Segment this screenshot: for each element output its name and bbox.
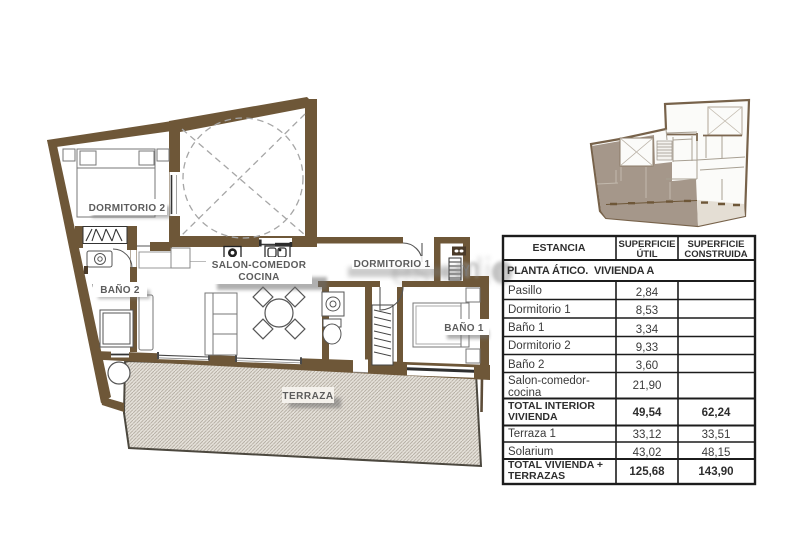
svg-text:Pasillo: Pasillo (508, 285, 542, 297)
svg-text:43,02: 43,02 (633, 447, 662, 459)
svg-text:TERRAZA: TERRAZA (282, 391, 333, 402)
svg-text:Baño 1: Baño 1 (508, 322, 544, 334)
svg-text:SALON-COMEDOR: SALON-COMEDOR (212, 260, 307, 271)
svg-text:DORMITORIO 2: DORMITORIO 2 (89, 203, 166, 214)
svg-text:TERRAZAS: TERRAZAS (508, 470, 565, 482)
svg-text:125,68: 125,68 (629, 466, 665, 478)
svg-text:2,84: 2,84 (636, 287, 659, 299)
svg-text:CONSTRUIDA: CONSTRUIDA (684, 249, 747, 260)
svg-text:PLANTA ÁTICO.: PLANTA ÁTICO. (507, 264, 588, 277)
svg-text:ÚTIL: ÚTIL (636, 248, 657, 260)
svg-text:Dormitorio 1: Dormitorio 1 (508, 304, 571, 316)
svg-text:8,53: 8,53 (636, 305, 658, 317)
svg-text:33,51: 33,51 (702, 429, 731, 441)
svg-text:9,33: 9,33 (636, 342, 658, 354)
svg-text:33,12: 33,12 (633, 429, 662, 441)
svg-text:DORMITORIO 1: DORMITORIO 1 (354, 259, 431, 270)
svg-text:Salon-comedor-: Salon-comedor- (508, 375, 590, 387)
svg-text:21,90: 21,90 (633, 380, 662, 392)
svg-text:VIVIENDA A: VIVIENDA A (594, 265, 654, 277)
svg-text:3,60: 3,60 (636, 360, 658, 372)
svg-text:3,34: 3,34 (636, 324, 659, 336)
svg-text:BAÑO 1: BAÑO 1 (444, 321, 484, 334)
svg-text:62,24: 62,24 (702, 407, 731, 419)
svg-text:VIVIENDA: VIVIENDA (508, 411, 558, 423)
svg-text:cocina: cocina (508, 387, 542, 399)
svg-text:49,54: 49,54 (633, 407, 662, 419)
svg-text:Baño 2: Baño 2 (508, 359, 544, 371)
svg-text:BAÑO 2: BAÑO 2 (100, 283, 140, 296)
svg-text:ESTANCIA: ESTANCIA (533, 242, 586, 254)
svg-text:Solarium: Solarium (508, 446, 553, 458)
svg-text:m: m (455, 252, 480, 285)
svg-text:Terraza 1: Terraza 1 (508, 428, 556, 440)
svg-text:Dormitorio 2: Dormitorio 2 (508, 340, 571, 352)
svg-text:COCINA: COCINA (238, 272, 279, 283)
svg-text:48,15: 48,15 (702, 447, 731, 459)
svg-text:143,90: 143,90 (698, 466, 733, 478)
